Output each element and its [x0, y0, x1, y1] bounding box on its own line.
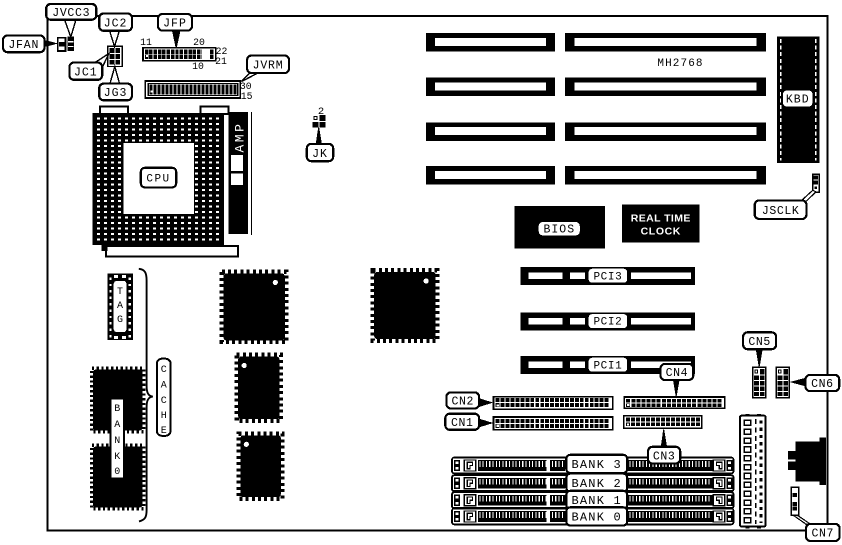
svg-text:JFP: JFP: [163, 18, 187, 31]
svg-text:CN1: CN1: [451, 417, 474, 430]
svg-text:11: 11: [140, 37, 152, 48]
svg-text:A: A: [161, 380, 167, 391]
svg-text:JC1: JC1: [74, 66, 98, 79]
svg-text:JFAN: JFAN: [8, 39, 39, 52]
svg-text:CLOCK: CLOCK: [641, 225, 681, 237]
svg-text:PCI2: PCI2: [593, 317, 622, 329]
svg-text:PCI3: PCI3: [593, 271, 622, 283]
svg-text:20: 20: [193, 37, 205, 48]
svg-text:AMP: AMP: [233, 122, 248, 153]
svg-text:PCI1: PCI1: [593, 360, 622, 372]
svg-text:2: 2: [318, 106, 324, 118]
svg-text:JSCLK: JSCLK: [762, 205, 800, 218]
svg-text:E: E: [161, 426, 167, 437]
svg-text:G: G: [117, 315, 123, 326]
svg-text:MH2768: MH2768: [657, 58, 703, 70]
svg-text:H: H: [161, 411, 167, 422]
svg-text:BANK 3: BANK 3: [571, 458, 621, 472]
svg-text:K: K: [114, 452, 120, 463]
svg-text:REAL TIME: REAL TIME: [631, 212, 691, 224]
svg-text:15: 15: [241, 91, 253, 102]
svg-text:N: N: [114, 436, 120, 447]
svg-text:JVRM: JVRM: [253, 60, 284, 73]
svg-text:T: T: [117, 287, 123, 298]
svg-text:JC2: JC2: [104, 17, 128, 30]
svg-text:10: 10: [192, 61, 204, 72]
svg-text:C: C: [161, 365, 167, 376]
svg-text:KBD: KBD: [786, 94, 810, 107]
svg-text:0: 0: [114, 467, 120, 478]
svg-text:CPU: CPU: [146, 173, 170, 185]
svg-text:CN5: CN5: [748, 336, 771, 349]
svg-text:CN3: CN3: [653, 450, 676, 463]
svg-text:JG3: JG3: [104, 87, 128, 100]
svg-text:BANK 2: BANK 2: [571, 477, 621, 491]
svg-text:JVCC3: JVCC3: [52, 7, 90, 20]
svg-text:C: C: [161, 396, 167, 407]
svg-text:A: A: [117, 301, 123, 312]
svg-text:BANK 0: BANK 0: [571, 511, 621, 525]
svg-text:BANK 1: BANK 1: [571, 494, 621, 508]
svg-text:CN4: CN4: [666, 367, 689, 380]
svg-text:CN7: CN7: [812, 528, 835, 541]
svg-text:CN2: CN2: [451, 396, 474, 409]
svg-text:B: B: [114, 404, 120, 415]
svg-text:21: 21: [215, 56, 227, 67]
svg-text:BIOS: BIOS: [543, 223, 575, 236]
svg-text:A: A: [114, 420, 120, 431]
svg-text:CN6: CN6: [811, 378, 834, 391]
svg-text:JK: JK: [312, 148, 328, 161]
